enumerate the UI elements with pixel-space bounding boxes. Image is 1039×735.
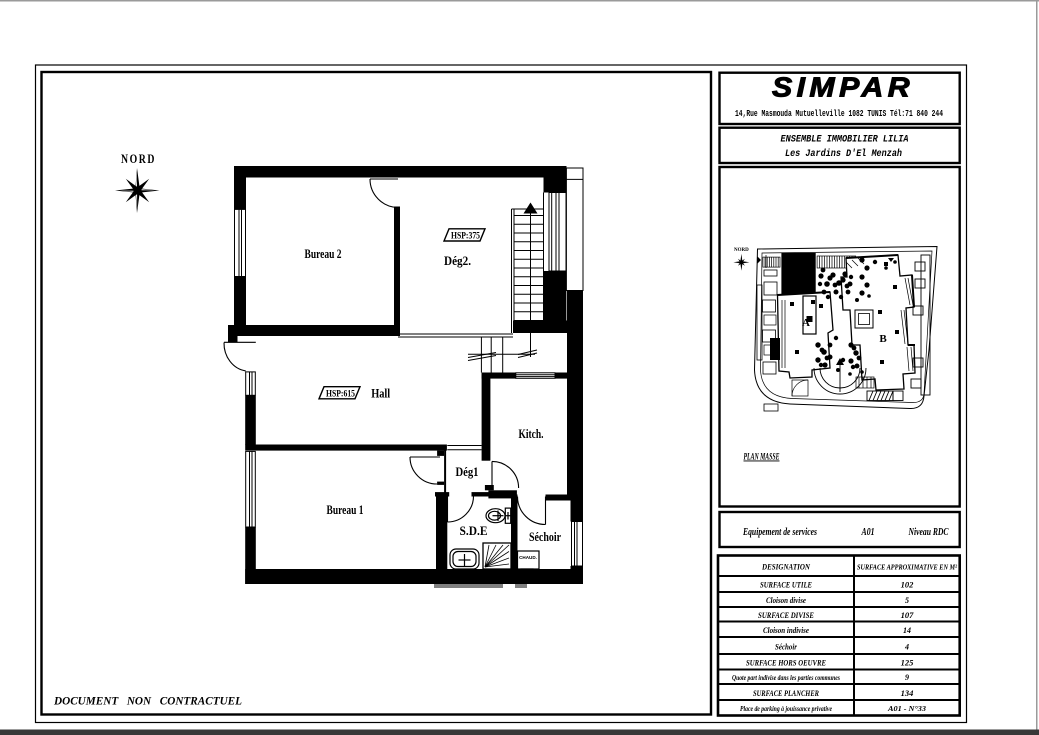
svg-text:Dég2.: Dég2. [444, 253, 471, 268]
svg-text:NORD: NORD [734, 248, 749, 253]
svg-text:HSP:375: HSP:375 [451, 231, 480, 241]
svg-text:Séchoir: Séchoir [529, 530, 561, 544]
svg-text:14: 14 [903, 626, 911, 635]
svg-text:SURFACE APPROXIMATIVE EN M²: SURFACE APPROXIMATIVE EN M² [857, 564, 958, 572]
svg-text:Quote part indivise dans les p: Quote part indivise dans les parties com… [732, 675, 840, 682]
svg-text:Hall: Hall [371, 386, 390, 401]
svg-text:CHAUD.: CHAUD. [519, 555, 537, 560]
svg-text:9: 9 [905, 673, 909, 682]
svg-text:Les Jardins D'El Menzah: Les Jardins D'El Menzah [785, 148, 902, 160]
svg-text:134: 134 [901, 688, 914, 698]
svg-text:SIMPAR: SIMPAR [772, 72, 914, 103]
svg-text:4: 4 [904, 643, 909, 652]
svg-text:DESIGNATION: DESIGNATION [761, 562, 811, 572]
svg-text:Séchoir: Séchoir [775, 643, 798, 652]
svg-text:ENSEMBLE IMMOBILIER LILIA: ENSEMBLE IMMOBILIER LILIA [781, 134, 909, 146]
svg-text:125: 125 [901, 658, 915, 668]
svg-text:A01: A01 [861, 527, 875, 538]
svg-text:5: 5 [905, 596, 909, 605]
svg-text:Place de parking à jouissance: Place de parking à jouissance privative [740, 705, 833, 713]
svg-text:Bureau 2: Bureau 2 [305, 246, 342, 261]
svg-text:Cloison divise: Cloison divise [766, 596, 806, 605]
svg-text:A01 - N°33: A01 - N°33 [887, 704, 926, 713]
svg-text:Dég1: Dég1 [456, 464, 479, 479]
svg-text:DOCUMENT NON CONTRACTUEL: DOCUMENT NON CONTRACTUEL [53, 696, 242, 708]
svg-text:B: B [879, 333, 887, 345]
svg-text:14,Rue Masmouda Mutuelleville: 14,Rue Masmouda Mutuelleville 1082 TUNIS… [735, 108, 943, 119]
svg-text:SURFACE DIVISE: SURFACE DIVISE [758, 610, 814, 620]
svg-text:Niveau RDC: Niveau RDC [908, 527, 949, 538]
svg-text:Cloison indivise: Cloison indivise [763, 626, 809, 635]
svg-text:107: 107 [901, 610, 915, 620]
svg-text:Equipement de services: Equipement de services [742, 527, 817, 538]
svg-text:Bureau 1: Bureau 1 [327, 502, 364, 517]
svg-text:S.D.E: S.D.E [460, 523, 488, 538]
svg-text:SURFACE UTILE: SURFACE UTILE [760, 580, 812, 590]
svg-text:102: 102 [901, 580, 915, 590]
svg-text:SURFACE PLANCHER: SURFACE PLANCHER [753, 688, 819, 698]
svg-text:SURFACE HORS OEUVRE: SURFACE HORS OEUVRE [746, 658, 826, 668]
svg-text:PLAN MASSE: PLAN MASSE [744, 452, 780, 462]
svg-text:NORD: NORD [121, 152, 156, 166]
svg-text:HSP:615: HSP:615 [326, 389, 355, 399]
svg-text:A: A [802, 317, 810, 329]
svg-text:Kitch.: Kitch. [519, 426, 544, 441]
